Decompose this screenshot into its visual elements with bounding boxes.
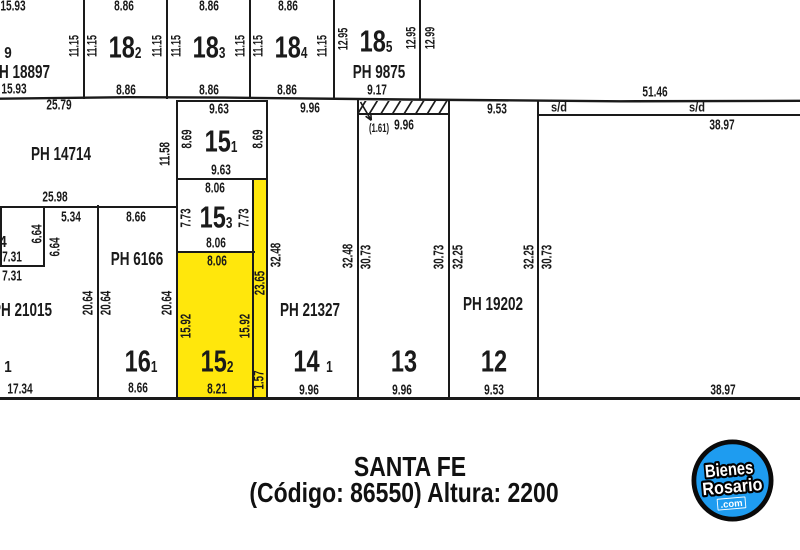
svg-text:.com: .com [720, 497, 743, 510]
